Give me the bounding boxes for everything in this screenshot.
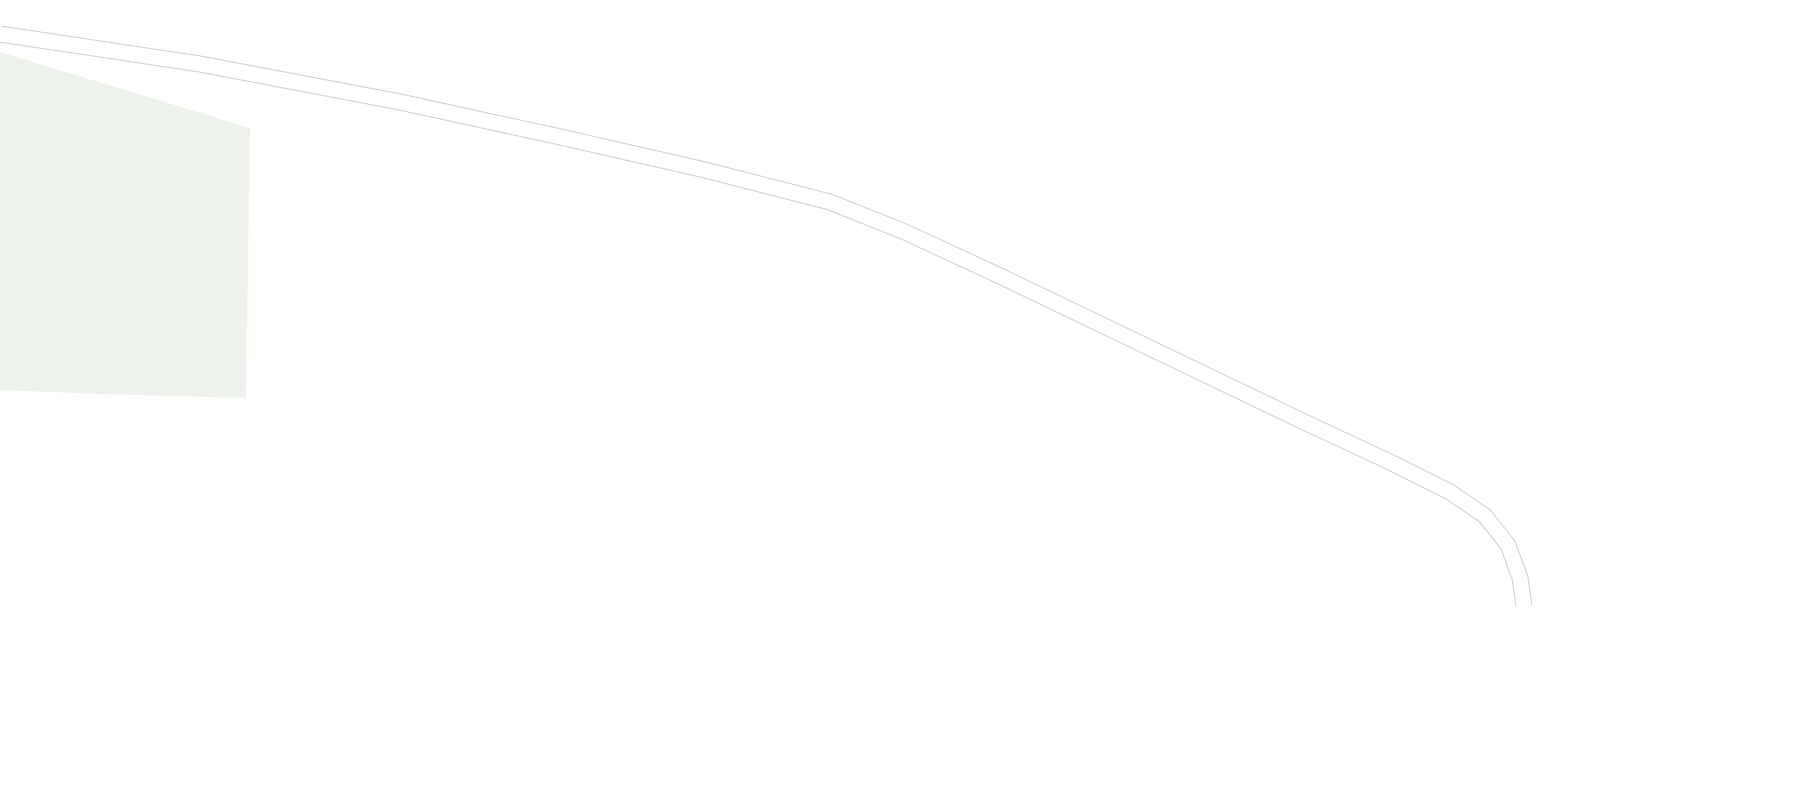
pale-green-area bbox=[0, 52, 250, 398]
outside-pale-area bbox=[0, 52, 250, 398]
site-plan-canvas bbox=[0, 0, 1800, 800]
site-plan-map bbox=[0, 0, 1800, 800]
